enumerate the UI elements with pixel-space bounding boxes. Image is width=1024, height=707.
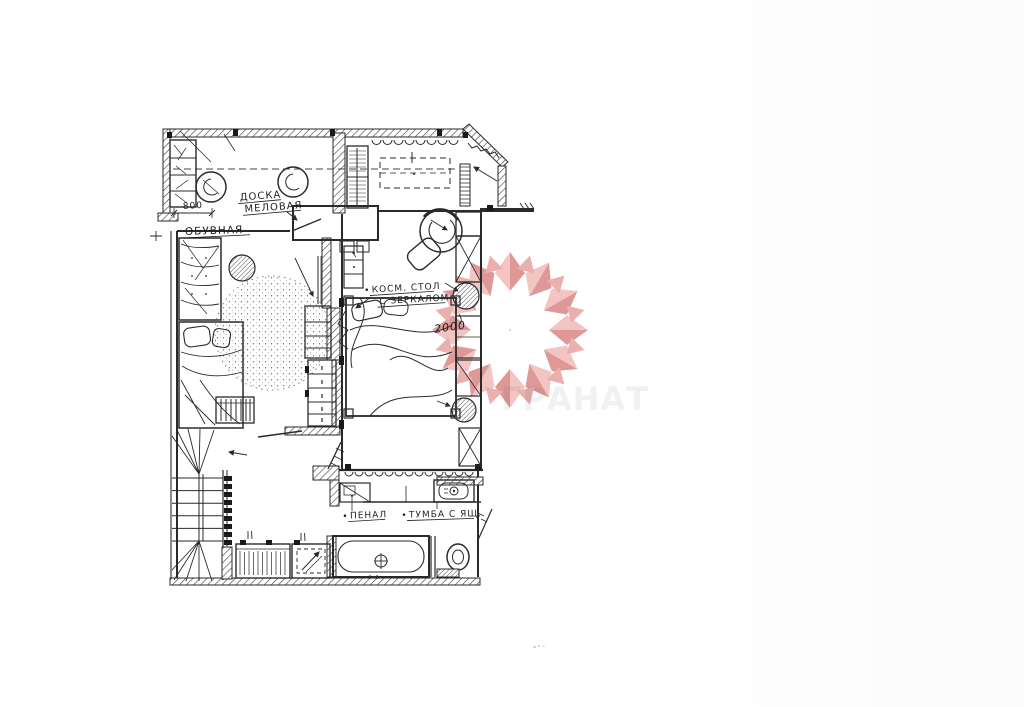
stair-direction-arrow bbox=[229, 452, 247, 455]
label-cosmetic-table: КОСМ. СТОЛ С ЗЕРКАЛОМ bbox=[365, 281, 450, 307]
label-penal: ПЕНАЛ bbox=[344, 510, 388, 522]
bathroom bbox=[333, 480, 481, 579]
svg-text:800: 800 bbox=[183, 201, 204, 212]
ottoman bbox=[405, 235, 444, 272]
label-bullet bbox=[344, 514, 347, 517]
scan-speck bbox=[533, 645, 545, 648]
label-bullet bbox=[403, 513, 406, 516]
stippled-rug bbox=[216, 277, 328, 389]
floorplan-sketch: ГРАНАТ bbox=[0, 0, 1024, 707]
watermark-brand-text: ГРАНАТ bbox=[501, 380, 649, 418]
label-room-name: ОБУВНАЯ bbox=[183, 224, 250, 238]
bathtub bbox=[333, 536, 429, 579]
paper-shade bbox=[580, 0, 1024, 707]
hall-round-stool bbox=[278, 167, 308, 197]
hanger-cabinet bbox=[236, 544, 290, 578]
toilet bbox=[447, 544, 469, 570]
scanned-floorplan-page: ГРАНАТ bbox=[0, 0, 1024, 707]
bath-bench bbox=[437, 569, 459, 577]
hanger-wardrobe bbox=[347, 146, 368, 208]
baluster-column bbox=[224, 476, 232, 545]
loft-ladder-railing bbox=[216, 397, 254, 423]
round-table bbox=[229, 255, 255, 281]
label-chalkboard: ДОСКА МЕЛОВАЯ bbox=[237, 188, 302, 215]
dashed-cabinet bbox=[292, 544, 330, 578]
watermark-center-dot bbox=[509, 329, 511, 331]
penal-cabinet bbox=[340, 483, 370, 502]
bottom-cabinets bbox=[236, 540, 330, 578]
label-tumba: ТУМБА С ЯЩ. bbox=[403, 509, 483, 520]
left-room bbox=[179, 238, 336, 428]
label-bullet bbox=[365, 288, 368, 291]
sofa bbox=[179, 238, 221, 320]
radiator-ladder bbox=[460, 164, 470, 206]
